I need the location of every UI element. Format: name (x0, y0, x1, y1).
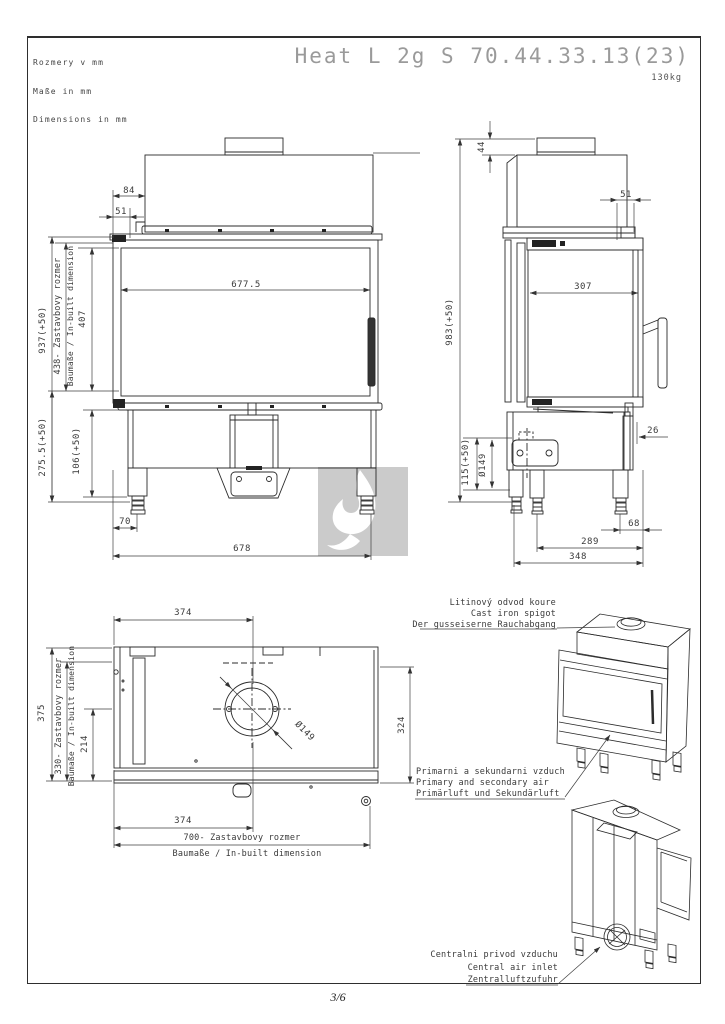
annotation-spigot-cz: Litinový odvod koure (450, 598, 556, 608)
plan-view: 374 375 330- Zastavbovy rozmer Baumaße /… (37, 608, 414, 859)
plan-view-dimensions: 374 375 330- Zastavbovy rozmer Baumaße /… (37, 608, 414, 859)
leader-central (558, 947, 600, 984)
iso-front-view (557, 614, 690, 780)
plan-view-linework (114, 647, 378, 806)
dim-700-label2: Baumaße / In-built dimension (173, 849, 322, 859)
annotation-central-cz: Centralni privod vzduchu (430, 950, 558, 960)
technical-drawing: 84 51 677.5 407 937(+50) 438- Zastavbovy… (0, 0, 725, 1024)
dim-d149-side: Ø149 (477, 453, 488, 477)
side-view-details (532, 240, 565, 405)
annotation-air-de: Primärluft und Sekundärluft (416, 789, 560, 799)
side-view-dimensions: 44 51 307 983(+50) 115(+50) Ø149 26 68 2… (445, 121, 668, 567)
dim-106: 106(+50) (72, 427, 82, 474)
dim-324: 324 (397, 716, 407, 734)
annotation-central-air: Centralni privod vzduchu Central air inl… (430, 947, 600, 985)
dim-84: 84 (123, 186, 135, 196)
dim-115: 115(+50) (461, 438, 471, 485)
dim-438-label: 438- Zastavbovy rozmer (53, 258, 63, 375)
annotation-air-cz: Primarni a sekundarni vzduch (416, 767, 565, 777)
dim-983: 983(+50) (445, 298, 455, 345)
leader-air (565, 735, 610, 797)
dim-d149-plan: Ø149 (293, 719, 318, 744)
dim-677-5: 677.5 (231, 280, 261, 290)
iso-rear-view (572, 800, 691, 969)
page-number: 3/6 (0, 990, 676, 1005)
dim-68: 68 (628, 519, 640, 529)
front-view-details (112, 229, 326, 470)
dim-678: 678 (233, 544, 251, 554)
dim-374-top: 374 (174, 608, 192, 618)
leader-spigot (557, 627, 615, 628)
dim-330-label: 330- Zastavbovy rozmer (54, 658, 64, 775)
side-view-linework (503, 138, 667, 514)
annotation-air-en: Primary and secondary air (416, 778, 549, 788)
dim-214: 214 (80, 735, 90, 753)
dim-side-51: 51 (620, 190, 632, 200)
dim-407: 407 (78, 310, 88, 328)
dim-44: 44 (477, 141, 487, 153)
brand-watermark (318, 467, 408, 556)
dim-375: 375 (37, 704, 47, 722)
annotation-central-de: Zentralluftzufuhr (468, 975, 558, 985)
annotation-spigot: Litinový odvod koure Cast iron spigot De… (412, 598, 615, 630)
dim-700-label: 700- Zastavbovy rozmer (184, 833, 301, 843)
dim-51: 51 (115, 207, 127, 217)
dim-330-label2: Baumaße / In-built dimension (67, 646, 76, 786)
dim-70: 70 (119, 517, 131, 527)
front-view-linework (110, 138, 420, 514)
dim-26: 26 (647, 426, 659, 436)
dim-289: 289 (581, 537, 599, 547)
dim-275-5: 275.5(+50) (38, 417, 48, 476)
dim-438-label2: Baumaße / In-built dimension (66, 246, 75, 386)
annotation-spigot-en: Cast iron spigot (471, 609, 556, 619)
annotation-spigot-de: Der gusseiserne Rauchabgang (412, 620, 556, 630)
dim-374-bottom: 374 (174, 816, 192, 826)
annotation-central-en: Central air inlet (468, 963, 558, 973)
annotation-air: Primarni a sekundarni vzduch Primary and… (415, 735, 610, 799)
dim-348: 348 (569, 552, 587, 562)
dim-937: 937(+50) (38, 306, 48, 353)
dim-307: 307 (574, 282, 592, 292)
side-view: 44 51 307 983(+50) 115(+50) Ø149 26 68 2… (445, 121, 668, 567)
